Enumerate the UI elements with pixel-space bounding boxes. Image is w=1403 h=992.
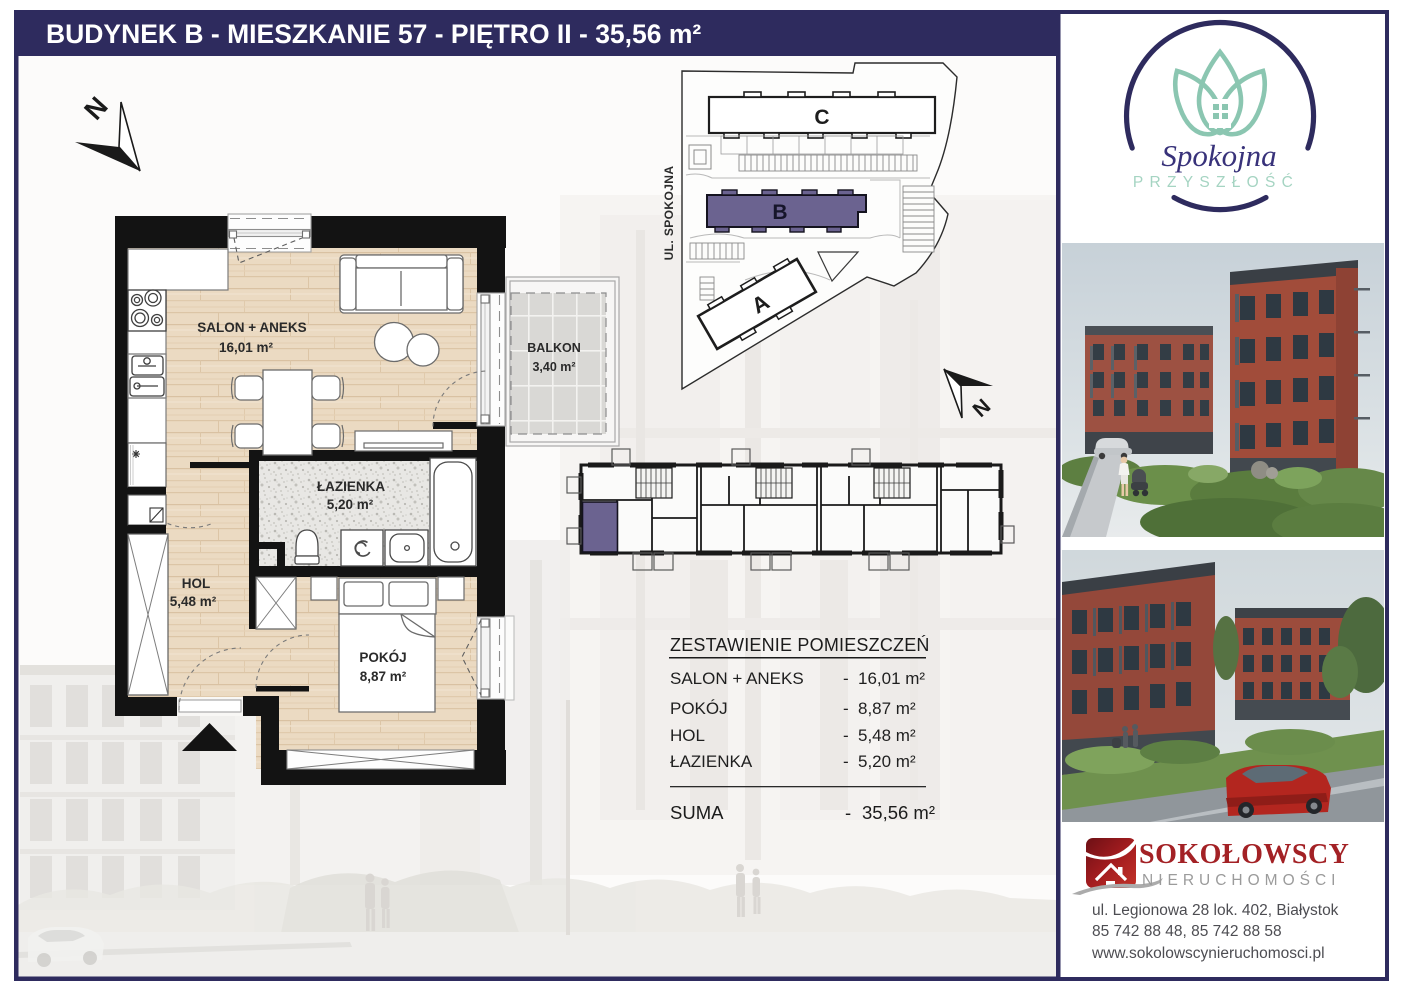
svg-text:UL. SPOKOJNA: UL. SPOKOJNA	[662, 166, 676, 261]
svg-text:NIERUCHOMOŚCI: NIERUCHOMOŚCI	[1142, 871, 1340, 889]
svg-text:www.sokolowscynieruchomosci.pl: www.sokolowscynieruchomosci.pl	[1091, 945, 1325, 962]
svg-text:85 742 88 48, 85 742 88 58: 85 742 88 48, 85 742 88 58	[1092, 923, 1282, 940]
svg-text:-: -	[843, 752, 849, 771]
svg-text:16,01 m²: 16,01 m²	[858, 669, 925, 688]
svg-text:BALKON: BALKON	[527, 341, 580, 355]
svg-text:ZESTAWIENIE POMIESZCZEŃ: ZESTAWIENIE POMIESZCZEŃ	[670, 635, 930, 655]
svg-text:-: -	[845, 802, 851, 823]
svg-text:POKÓJ: POKÓJ	[670, 699, 728, 718]
svg-text:HOL: HOL	[182, 576, 211, 591]
svg-text:POKÓJ: POKÓJ	[359, 650, 406, 665]
svg-text:-: -	[843, 669, 849, 688]
svg-text:HOL: HOL	[670, 726, 705, 745]
svg-text:SALON + ANEKS: SALON + ANEKS	[197, 320, 306, 335]
svg-text:5,48 m²: 5,48 m²	[858, 726, 916, 745]
svg-text:8,87 m²: 8,87 m²	[858, 699, 916, 718]
svg-text:5,20 m²: 5,20 m²	[858, 752, 916, 771]
svg-text:16,01 m²: 16,01 m²	[219, 340, 274, 355]
svg-text:-: -	[843, 699, 849, 718]
svg-text:PRZYSZŁOŚĆ: PRZYSZŁOŚĆ	[1133, 173, 1299, 191]
svg-text:B: B	[772, 201, 787, 224]
svg-text:3,40 m²: 3,40 m²	[532, 360, 575, 374]
svg-text:C: C	[814, 106, 829, 129]
svg-text:BUDYNEK B - MIESZKANIE 57 - PI: BUDYNEK B - MIESZKANIE 57 - PIĘTRO II - …	[46, 19, 701, 49]
svg-text:ŁAZIENKA: ŁAZIENKA	[317, 479, 385, 494]
svg-text:8,87 m²: 8,87 m²	[360, 669, 407, 684]
svg-text:5,20 m²: 5,20 m²	[327, 497, 374, 512]
svg-text:ŁAZIENKA: ŁAZIENKA	[670, 752, 753, 771]
svg-text:Spokojna: Spokojna	[1161, 138, 1276, 173]
svg-text:SUMA: SUMA	[670, 802, 724, 823]
svg-text:5,48 m²: 5,48 m²	[170, 594, 217, 609]
svg-text:SALON + ANEKS: SALON + ANEKS	[670, 669, 804, 688]
svg-text:SOKOŁOWSCY: SOKOŁOWSCY	[1139, 839, 1349, 870]
svg-text:ul. Legionowa 28 lok. 402, Bia: ul. Legionowa 28 lok. 402, Białystok	[1092, 902, 1339, 919]
svg-text:35,56 m²: 35,56 m²	[862, 802, 935, 823]
svg-text:-: -	[843, 726, 849, 745]
